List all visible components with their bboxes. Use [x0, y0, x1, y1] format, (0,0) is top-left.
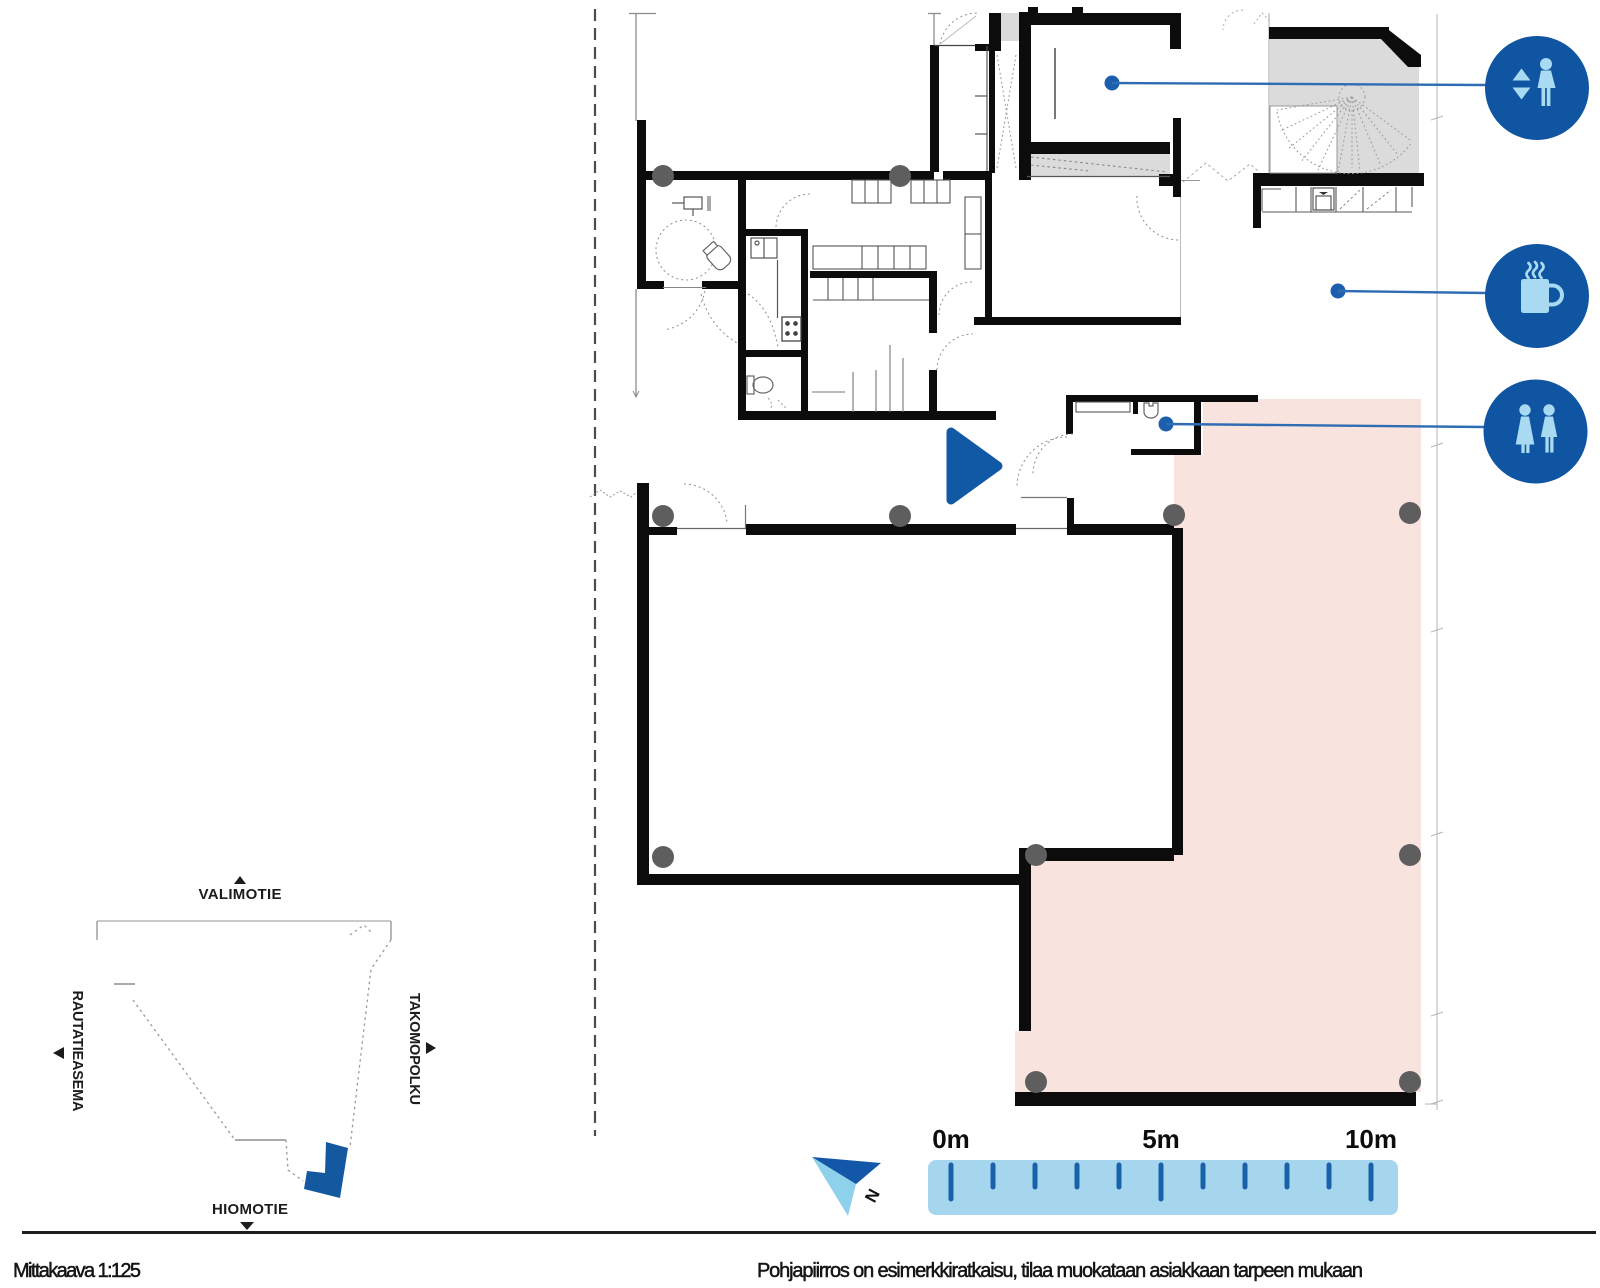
svg-text:VALIMOTIE: VALIMOTIE — [199, 886, 282, 903]
svg-text:TAKOMOPOLKU: TAKOMOPOLKU — [406, 993, 422, 1105]
svg-text:Mittakaava 1:125: Mittakaava 1:125 — [13, 1260, 141, 1282]
svg-text:RAUTATIEASEMA: RAUTATIEASEMA — [69, 991, 85, 1113]
svg-text:Pohjapiirros on esimerkkiratka: Pohjapiirros on esimerkkiratkaisu, tilaa… — [757, 1260, 1363, 1282]
svg-text:0m: 0m — [932, 1124, 970, 1154]
svg-text:5m: 5m — [1142, 1124, 1180, 1154]
svg-text:HIOMOTIE: HIOMOTIE — [212, 1201, 288, 1218]
svg-text:10m: 10m — [1345, 1124, 1397, 1154]
